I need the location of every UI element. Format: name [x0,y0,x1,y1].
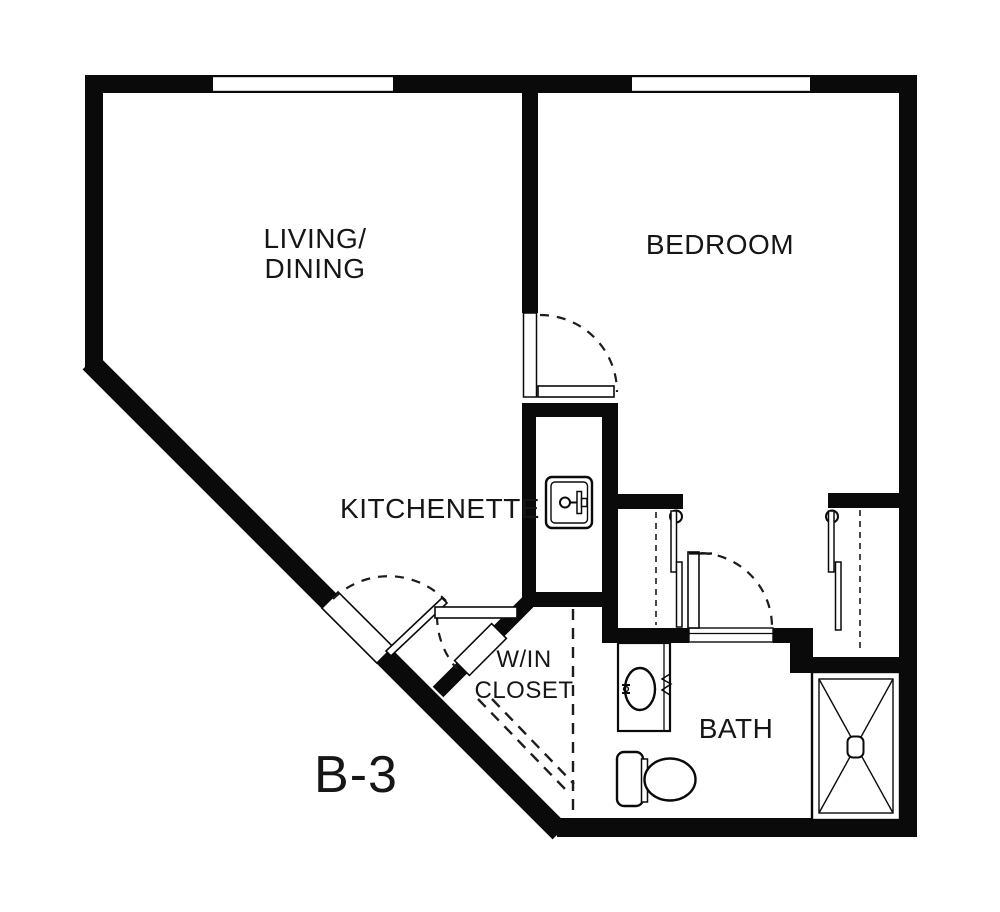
win-closet-label-line2: CLOSET [474,677,573,704]
exterior-wall-right [899,75,917,837]
window-living [213,75,393,93]
hall-closet-right [826,510,860,653]
kitchenette-wall-top [522,403,618,417]
bath-door-arc [701,553,772,626]
shower-top-wall [813,657,900,673]
bedroom-door-panel [538,386,614,397]
floor-plan-drawing: LIVING/ DINING BEDROOM KITCHENETTE W/IN … [0,0,1000,912]
exterior-wall-left [85,75,103,370]
bath-door-panel [688,552,699,628]
wall-living-bedroom [522,93,538,313]
win-closet-label-line1: W/IN [496,646,551,673]
entry-door-arc [333,576,446,601]
toilet-icon [617,752,696,806]
living-dining-label-line1: LIVING/ [263,223,366,254]
shower-drain [848,737,864,758]
bedroom-south-wall-right [828,493,902,508]
bedroom-label: BEDROOM [646,229,794,260]
bath-label: BATH [699,713,774,744]
window-bedroom [632,75,810,93]
win-closet-door-panel [435,607,517,618]
bathroom-sink-icon [618,643,671,731]
hall-closet-left [656,511,682,628]
bath-corner-wall [790,628,813,673]
kitchen-sink-icon [546,477,592,528]
bedroom-south-wall-left [617,494,683,509]
kitchenette-label: KITCHENETTE [340,493,540,524]
floor-plan-canvas: LIVING/ DINING BEDROOM KITCHENETTE W/IN … [0,0,1000,912]
kitchenette-wall-east [602,415,618,643]
bedroom-door-opening [524,313,537,397]
bath-door [688,552,773,642]
unit-label: B-3 [314,746,398,804]
entry-door-opening [322,592,393,663]
living-dining-label-line2: DINING [265,253,366,284]
bedroom-door-arc [540,315,617,392]
bath-north-wall-west [617,628,689,643]
kitchenette-wall-south [522,592,603,607]
shower-icon [812,672,900,820]
